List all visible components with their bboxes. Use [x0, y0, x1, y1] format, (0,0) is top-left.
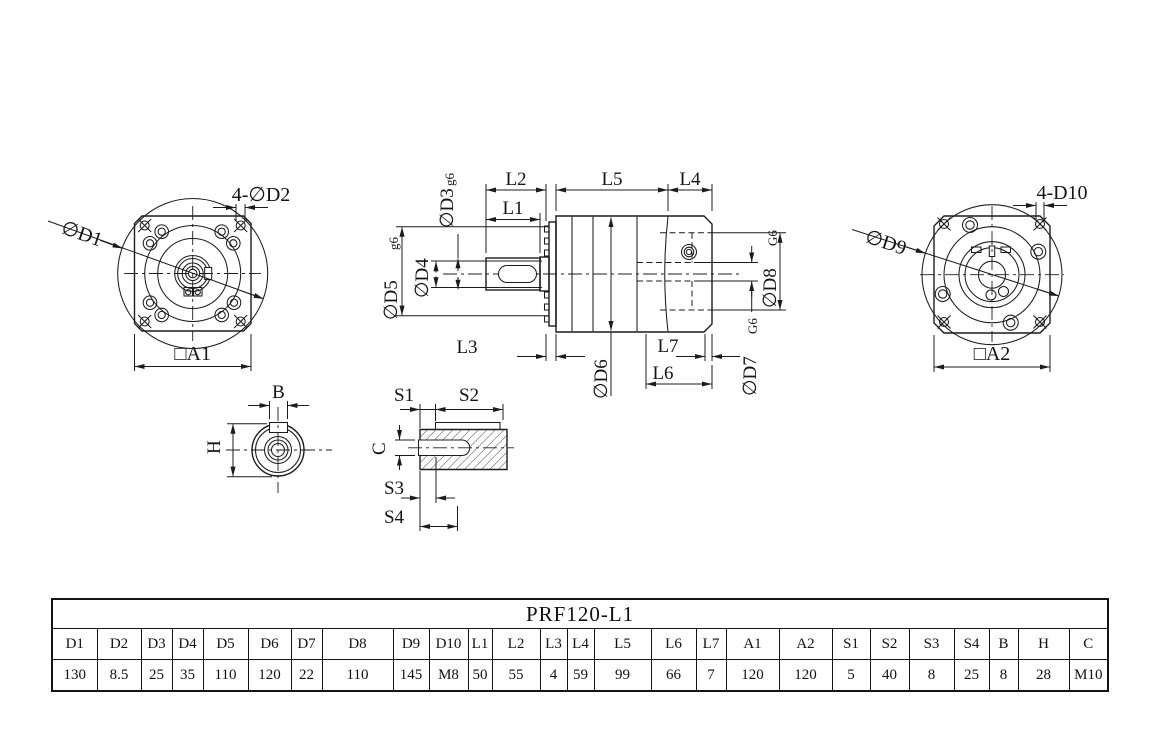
- key-b-dimension: B: [248, 382, 309, 419]
- side-l3-dimension: L3: [456, 334, 585, 361]
- s2-label: S2: [459, 385, 479, 406]
- value-cell: 25: [954, 660, 989, 692]
- rear-small-hole-1: [986, 290, 996, 300]
- c-label: C: [369, 442, 390, 455]
- d5-label: ∅D5: [381, 280, 402, 320]
- side-l5-dimension: L5: [556, 169, 668, 211]
- col-header: B: [989, 629, 1018, 660]
- key-profile: [436, 423, 501, 430]
- h-label: H: [204, 440, 225, 454]
- key-section-keyway: [270, 423, 288, 433]
- value-cell: 22: [291, 660, 322, 692]
- rear-bell-curve: [665, 217, 668, 332]
- table-title: PRF120-L1: [52, 599, 1108, 629]
- s1-s2-dimensions: S1 S2: [394, 385, 503, 428]
- spec-table-container: PRF120-L1 D1 D2 D3 D4 D5 D6 D7 D8 D9 D10…: [51, 598, 1107, 692]
- col-header: D5: [203, 629, 248, 660]
- side-l1-dimension: L1: [487, 198, 541, 253]
- col-header: L7: [696, 629, 726, 660]
- value-cell: 59: [567, 660, 594, 692]
- side-l7-dimension: L7: [657, 334, 740, 361]
- rear-a2-label: □A2: [974, 343, 1011, 365]
- value-cell: 5: [832, 660, 870, 692]
- col-header: D1: [52, 629, 97, 660]
- table-header-row: D1 D2 D3 D4 D5 D6 D7 D8 D9 D10 L1 L2 L3 …: [52, 629, 1108, 660]
- front-shaft-bore: [175, 256, 212, 297]
- value-cell: 8.5: [97, 660, 141, 692]
- value-cell: 8: [909, 660, 954, 692]
- b-label: B: [272, 382, 285, 403]
- rear-d10-label: 4-D10: [1036, 182, 1087, 204]
- value-cell: 110: [322, 660, 393, 692]
- col-header: D10: [429, 629, 468, 660]
- s4-label: S4: [384, 507, 405, 528]
- value-cell: 120: [248, 660, 291, 692]
- d7-label: ∅D7: [740, 356, 761, 396]
- side-l6-dimension: L6: [646, 334, 712, 389]
- value-cell: 66: [651, 660, 696, 692]
- value-cell: 110: [203, 660, 248, 692]
- col-header: D6: [248, 629, 291, 660]
- col-header: L4: [567, 629, 594, 660]
- col-header: D7: [291, 629, 322, 660]
- front-flange-view: ∅D1 4-∅D2 □A1: [48, 184, 290, 371]
- d8-label: ∅D8: [760, 268, 781, 308]
- d6-label: ∅D6: [591, 359, 612, 399]
- value-cell: M8: [429, 660, 468, 692]
- l1-label: L1: [502, 198, 523, 219]
- rear-flange-view: ∅D9 4-D10 □A2: [852, 182, 1088, 372]
- l3-label: L3: [456, 337, 477, 358]
- col-header: A1: [726, 629, 779, 660]
- col-header: H: [1018, 629, 1069, 660]
- l7-label: L7: [657, 336, 678, 357]
- l6-label: L6: [652, 363, 673, 384]
- engineering-drawing-page: ∅D1 4-∅D2 □A1: [0, 0, 1162, 740]
- side-d7-dimension: ∅D7 G6: [694, 246, 761, 396]
- col-header: S3: [909, 629, 954, 660]
- value-cell: 35: [172, 660, 203, 692]
- col-header: L2: [492, 629, 540, 660]
- keyway-detail-view: S1 S2 C S3 S4: [369, 385, 514, 531]
- col-header: L6: [651, 629, 696, 660]
- col-header: D2: [97, 629, 141, 660]
- col-header: L1: [468, 629, 492, 660]
- col-header: L5: [594, 629, 651, 660]
- d3-fit-label: g6: [442, 173, 457, 187]
- value-cell: 50: [468, 660, 492, 692]
- value-cell: 28: [1018, 660, 1069, 692]
- col-header: S1: [832, 629, 870, 660]
- col-header: D3: [141, 629, 172, 660]
- front-a1-label: □A1: [174, 343, 211, 365]
- value-cell: 4: [540, 660, 567, 692]
- col-header: A2: [779, 629, 832, 660]
- col-header: S4: [954, 629, 989, 660]
- drawing-canvas: ∅D1 4-∅D2 □A1: [0, 0, 1162, 585]
- shaft-key-section-view: B H: [204, 382, 332, 493]
- hidden-bores: [637, 233, 712, 310]
- value-cell: 7: [696, 660, 726, 692]
- s1-label: S1: [394, 385, 414, 406]
- rear-d10-dimension: 4-D10: [1013, 182, 1088, 220]
- col-header: L3: [540, 629, 567, 660]
- side-d8-dimension: ∅D8 G6: [712, 230, 786, 310]
- clamp-screw: [682, 245, 697, 260]
- value-cell: 25: [141, 660, 172, 692]
- side-section-view: L2 L1 L5 L4 ∅D3 g6 ∅D4 ∅D5 g6: [381, 169, 786, 399]
- value-cell: 120: [779, 660, 832, 692]
- col-header: C: [1069, 629, 1108, 660]
- front-d1-label: ∅D1: [58, 217, 105, 251]
- d7-fit-label: G6: [745, 318, 760, 334]
- value-cell: 120: [726, 660, 779, 692]
- col-header: S2: [870, 629, 909, 660]
- value-cell: 130: [52, 660, 97, 692]
- rear-d9-dimension: ∅D9: [852, 226, 1059, 296]
- value-cell: 8: [989, 660, 1018, 692]
- table-value-row: 130 8.5 25 35 110 120 22 110 145 M8 50 5…: [52, 660, 1108, 692]
- col-header: D9: [393, 629, 429, 660]
- side-d6-dimension: ∅D6: [591, 218, 612, 400]
- s3-label: S3: [384, 478, 404, 499]
- value-cell: 55: [492, 660, 540, 692]
- side-l4-dimension: L4: [669, 169, 713, 211]
- rear-small-hole-2: [999, 287, 1009, 297]
- d5-fit-label: g6: [386, 237, 401, 251]
- shaft-keyway-slot: [499, 266, 537, 283]
- side-d3-dimension: ∅D3 g6: [437, 173, 458, 290]
- l4-label: L4: [679, 169, 701, 190]
- s4-dimension: S4: [384, 506, 458, 531]
- value-cell: M10: [1069, 660, 1108, 692]
- value-cell: 99: [594, 660, 651, 692]
- l5-label: L5: [601, 169, 622, 190]
- d4-label: ∅D4: [412, 258, 433, 298]
- d8-fit-label: G6: [765, 230, 780, 246]
- col-header: D4: [172, 629, 203, 660]
- front-d2-label: 4-∅D2: [232, 184, 291, 206]
- value-cell: 40: [870, 660, 909, 692]
- value-cell: 145: [393, 660, 429, 692]
- d3-label: ∅D3: [437, 188, 458, 228]
- l2-label: L2: [505, 169, 526, 190]
- spec-table: PRF120-L1 D1 D2 D3 D4 D5 D6 D7 D8 D9 D10…: [51, 598, 1109, 692]
- rear-d9-label: ∅D9: [862, 226, 909, 260]
- col-header: D8: [322, 629, 393, 660]
